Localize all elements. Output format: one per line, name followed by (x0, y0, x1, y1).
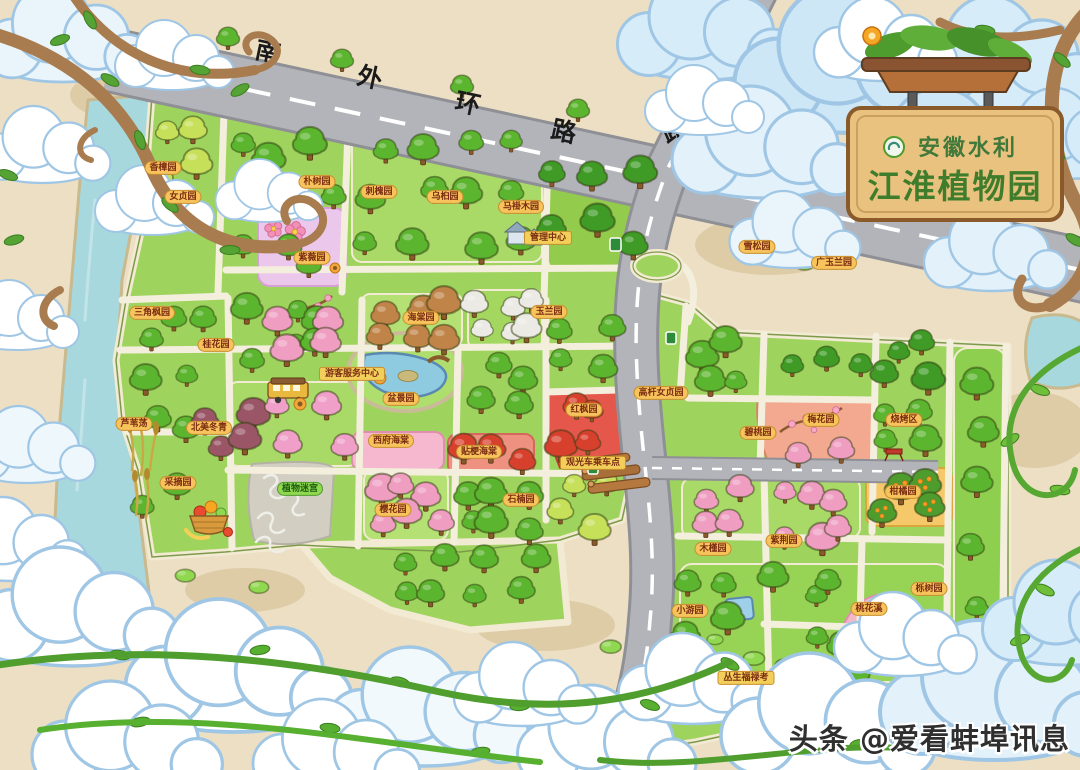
botanical-garden-map: 南外环路延安路 (0, 0, 1080, 770)
watermark: 头条 @爱看蚌埠讯息 (789, 716, 1070, 758)
pink-crabapple-zone (352, 432, 444, 470)
bush-icon (600, 640, 621, 653)
sign-org-text: 安徽水利 (918, 135, 1018, 161)
leaf-icon (220, 246, 240, 255)
bush-icon (707, 635, 723, 645)
sign-title-text: 江淮植物园 (868, 167, 1043, 206)
bush-icon (175, 569, 195, 582)
bush-icon (249, 581, 269, 593)
map-illustration: 南外环路延安路 (0, 0, 1080, 770)
org-logo-icon (884, 137, 904, 157)
